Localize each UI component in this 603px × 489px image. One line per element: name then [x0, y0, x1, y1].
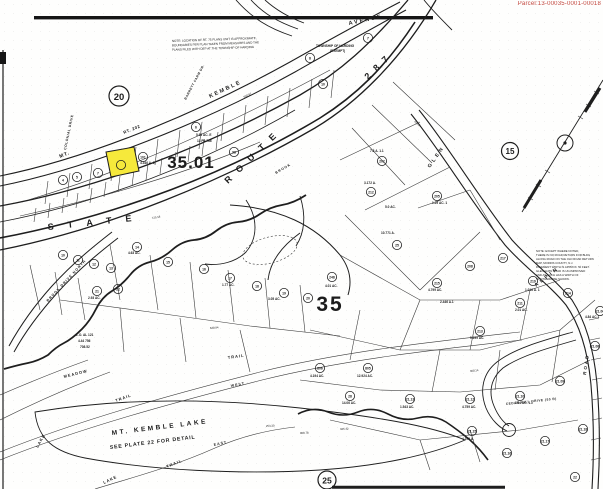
- lot-number: 21.12: [466, 397, 475, 401]
- lot-number: 12: [92, 262, 96, 266]
- map-label: TRAIL: [166, 458, 183, 469]
- map-label: LAKE: [102, 474, 118, 485]
- lot-number: 21.16: [503, 451, 512, 455]
- map-label: MEADOW: [63, 368, 88, 379]
- lot-number: 18: [255, 284, 259, 288]
- lot-number: 208: [467, 264, 473, 268]
- acreage-label: 4.299 A.: [462, 437, 474, 441]
- lot-number: 21.18: [579, 427, 588, 431]
- acreage-label: 4.759 AC.: [462, 405, 476, 409]
- lot-number: 14: [135, 245, 139, 249]
- lot-number: 211: [517, 301, 523, 305]
- highlighted-parcel: [106, 147, 139, 177]
- railroad-symbol-dot: [563, 141, 566, 144]
- cedar-hill-drive-road: [483, 332, 576, 437]
- lot-number: 6: [195, 125, 197, 129]
- trails: [0, 332, 522, 489]
- acreage-label: 5.0 AC.: [385, 205, 396, 209]
- acreage-label: 2.446 A.1: [440, 300, 454, 304]
- lot-number: 11: [76, 258, 80, 262]
- acreage-label: L.O. AL 121: [76, 333, 94, 337]
- zone-number: 35.01: [167, 153, 215, 172]
- acreage-label: 708.52: [80, 345, 90, 349]
- tax-map-page: Parcel:13-00035-0001-00018: [0, 0, 603, 489]
- acreage-label: 7.8 A. 1.1: [370, 149, 384, 153]
- acreage-label: 1.29 AC. 1: [432, 201, 447, 205]
- acreage-label: 3.05 AC.: [268, 297, 281, 301]
- dimension-label: 908.78: [300, 431, 309, 435]
- acreage-label: 4.194 AC.: [310, 374, 324, 378]
- lot-number: 21.13: [406, 397, 415, 401]
- plate-number: 20: [114, 92, 125, 103]
- map-label: TRAIL: [227, 353, 244, 360]
- map-label: LAKE: [35, 433, 47, 448]
- map-label: WEST: [230, 382, 245, 388]
- lot-number: 17: [228, 276, 232, 280]
- acreage-label: 12.924 AC.: [357, 374, 373, 378]
- lot-number: 20: [306, 296, 310, 300]
- lot-number: 22: [116, 287, 120, 291]
- acreage-label: 4.63 AC.: [128, 251, 141, 255]
- zone-number: 35: [316, 293, 343, 316]
- acreage-label: 5.299 AC.: [470, 336, 484, 340]
- lot-number: 4: [62, 178, 64, 182]
- lot-number: 28: [348, 394, 352, 398]
- left-edge-mark: [0, 52, 6, 64]
- map-label: ROUTE: [222, 125, 284, 185]
- lot-number: 805: [365, 366, 371, 370]
- acreage-label: 1.543 AC.: [400, 405, 414, 409]
- map-label: BROOK: [275, 163, 292, 175]
- map-label: TRAIL: [115, 393, 132, 403]
- plate-number: 15: [506, 147, 515, 156]
- lot-number: 806: [317, 366, 323, 370]
- acreage-label: 3.172 A.: [364, 181, 376, 185]
- acreage-label: 4.799 AC.: [428, 288, 442, 292]
- brook-drive-north-road: [9, 196, 304, 352]
- acreage-label: 10.771 A.: [381, 231, 395, 235]
- lot-number: 213: [477, 329, 483, 333]
- lot-number: 248: [329, 275, 335, 279]
- map-label: BARRETT FARM DR.: [183, 64, 205, 101]
- map-borders: [0, 16, 505, 489]
- lot-number: 8: [309, 56, 311, 60]
- acreage-label: 1.016 A. 1: [525, 288, 540, 292]
- lot-number: 13: [109, 266, 113, 270]
- lot-number: 21.10: [516, 394, 525, 398]
- lot-number: 10: [321, 82, 325, 86]
- lot-number: 10: [61, 253, 65, 257]
- dimension-label: 550.97: [243, 91, 253, 98]
- lot-number: 21.15: [468, 429, 477, 433]
- wetland-outline: [240, 230, 301, 270]
- lot-number: 16: [202, 267, 206, 271]
- acreage-label: 4.84 AC.1: [585, 315, 599, 319]
- map-label: (EXEMPT): [330, 49, 345, 53]
- lot-number: 5: [76, 175, 78, 179]
- tax-map-svg: 201525 35.0135 AVENUEMT.KEMBLERT. 202COL…: [0, 0, 603, 489]
- dimension-label: 638.94: [210, 325, 219, 330]
- railroad-line: [522, 80, 603, 212]
- note-line: 50' OTHERWISE SHOWN.: [536, 277, 570, 281]
- map-label: TOWNSHIP OF HARDING: [316, 44, 355, 48]
- lot-number: 215: [434, 281, 440, 285]
- mt-kemble-lake-outline: [35, 401, 465, 472]
- road-and-place-labels: AVENUEMT.KEMBLERT. 202COLONIAL DRIVEBARR…: [35, 14, 590, 485]
- lot-number: 22: [573, 475, 577, 479]
- acreage-label: 4.01 AC.: [325, 284, 338, 288]
- acreage-label: 2.93 AC.: [88, 296, 101, 300]
- dimension-label: 253.30: [266, 424, 275, 428]
- dimension-label: 725.18: [151, 214, 161, 220]
- dimension-label: 308.14: [470, 368, 479, 373]
- acreage-label: 3.04 AC. 1.1: [515, 401, 533, 405]
- zone-labels: 35.0135: [167, 153, 343, 316]
- highlight-polygon: [106, 147, 139, 177]
- lot-number: 7: [367, 36, 369, 40]
- acreage-label: 5.93 AC. E: [196, 133, 211, 137]
- lot-number: 15: [166, 260, 170, 264]
- lot-number: 214: [565, 291, 571, 295]
- lot-number: 21.09: [556, 379, 565, 383]
- acreage-label: 4.346 A. E: [140, 161, 155, 165]
- acreage-label: 13 PA 786: [197, 139, 212, 143]
- lot-number: 205: [434, 194, 440, 198]
- lot-number: 217: [500, 256, 506, 260]
- plate-number: 25: [322, 475, 332, 485]
- acreage-label: 14.06 AC.: [342, 401, 356, 405]
- acreage-label: 1.77 AC.: [222, 283, 235, 287]
- lot-number: 219: [530, 279, 536, 283]
- lot-number: 21: [95, 289, 99, 293]
- lot-number: 98: [232, 150, 236, 154]
- lot-number: 21.06: [596, 309, 603, 313]
- lot-number: 212: [368, 190, 374, 194]
- dimension-label: 425.42: [340, 427, 349, 431]
- map-label: COLONIAL DRIVE: [63, 114, 74, 150]
- lot-number: 21.08: [591, 344, 600, 348]
- lot-number: 202: [379, 159, 385, 163]
- lot-number: 19: [282, 291, 286, 295]
- south-stream: [298, 409, 488, 460]
- lot-markers: 7810610174598101112131415161718192021222…: [58, 33, 603, 481]
- acreage-label: 4.44 756: [78, 339, 91, 343]
- lot-number: 7: [97, 171, 99, 175]
- lot-number: 101: [140, 155, 146, 159]
- lot-number: 21.17: [541, 439, 550, 443]
- lot-number: 25: [395, 243, 399, 247]
- acreage-label: 2.01 AC.: [515, 308, 528, 312]
- map-label: SEE PLATE 22 FOR DETAIL: [110, 435, 196, 451]
